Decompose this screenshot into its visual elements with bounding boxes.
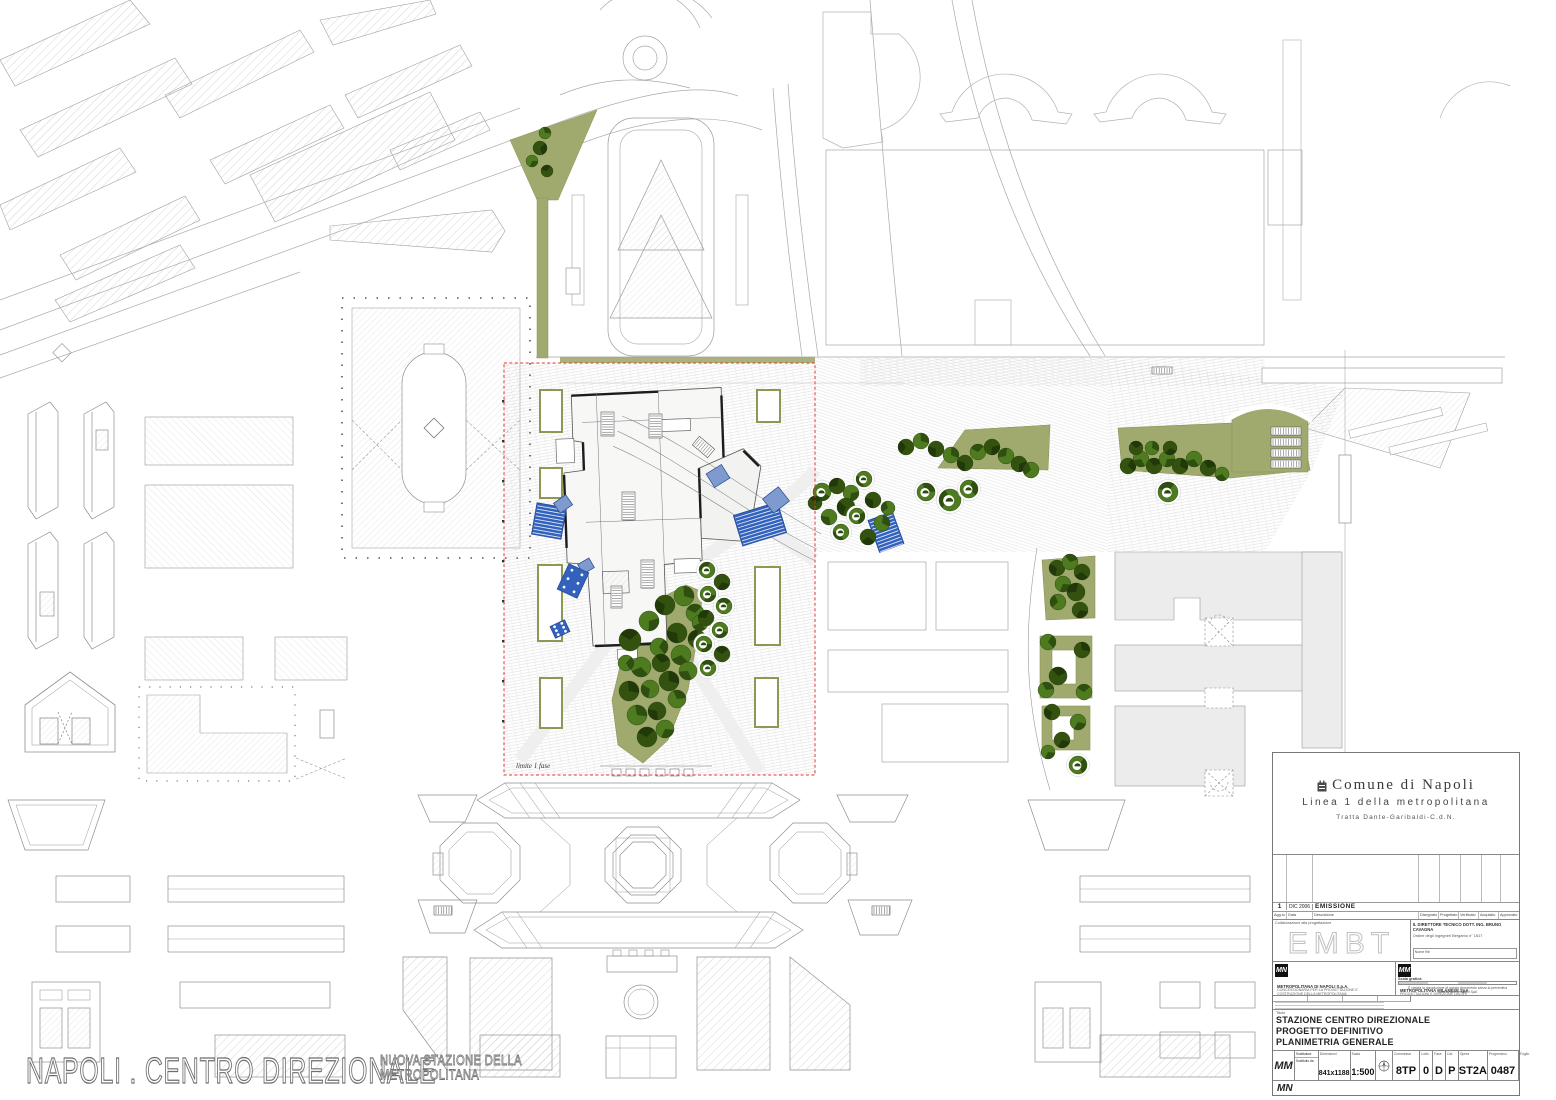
architectural-sheet: { "page": { "main_title": "NAPOLI . CENT… bbox=[0, 0, 1556, 1100]
escalator-symbol bbox=[622, 492, 635, 520]
escalator-symbol bbox=[1271, 427, 1301, 435]
linea-title: Linea 1 della metropolitana bbox=[1273, 797, 1519, 808]
revision-description: EMISSIONE bbox=[1313, 903, 1519, 910]
revision-number: 1 bbox=[1273, 903, 1287, 910]
dimensioni-value: 841x1188 bbox=[1319, 1070, 1350, 1080]
opera-cell: Opera ST2A bbox=[1459, 1051, 1488, 1080]
fase-label: Fase bbox=[1434, 1052, 1442, 1056]
revision-table bbox=[1273, 855, 1519, 903]
revision-row: 1 DIC 2006 EMISSIONE bbox=[1273, 903, 1519, 912]
lotto-value: 0 bbox=[1423, 1065, 1429, 1080]
oval-plaza bbox=[342, 298, 530, 558]
commessa-value: 8TP bbox=[1396, 1065, 1416, 1080]
escalator-symbol bbox=[434, 906, 452, 915]
dimensioni-label: Dimensioni bbox=[1320, 1052, 1337, 1056]
opera-label: Opera bbox=[1460, 1052, 1469, 1056]
mm-firm: MM METROPOLITANA MILANESE SpA PROGETTAZI… bbox=[1396, 962, 1519, 995]
lotto-cell: Lotto 0 bbox=[1420, 1051, 1433, 1080]
title-block: Comune di Napoli Linea 1 della metropoli… bbox=[1272, 752, 1520, 1096]
mm-logo: MM bbox=[1398, 964, 1411, 977]
progressivo-label: Progressivo bbox=[1489, 1052, 1507, 1056]
cat-value: P bbox=[1448, 1065, 1455, 1080]
project-title-line3: PLANIMETRIA GENERALE bbox=[1276, 1037, 1516, 1048]
escalator-symbol bbox=[649, 414, 662, 438]
mm-small: MM bbox=[1273, 1051, 1295, 1080]
opera-value: ST2A bbox=[1459, 1065, 1487, 1080]
filename-label: Nome file bbox=[1415, 950, 1430, 954]
progressivo-value: 0487 bbox=[1491, 1065, 1515, 1080]
comune-crest-icon bbox=[1317, 779, 1327, 792]
rev-col-verificato: Verificato bbox=[1459, 912, 1479, 919]
phase-label: limite 1 fase bbox=[516, 762, 550, 770]
director-line1: IL DIRETTORE TECNICO DOTT. ING. BRUNO CA… bbox=[1413, 922, 1517, 932]
mn-small: MN bbox=[1277, 1083, 1293, 1094]
fase-cell: Fase D bbox=[1433, 1051, 1446, 1080]
north-cell bbox=[1376, 1051, 1393, 1080]
comune-header: Comune di Napoli bbox=[1273, 777, 1519, 794]
commessa-label: Commessa bbox=[1394, 1052, 1411, 1056]
graphic-scale: Scala grafica È vietata la riproduzione … bbox=[1398, 977, 1517, 994]
top-center-complex bbox=[510, 0, 1105, 358]
project-title-section: Titolo STAZIONE CENTRO DIREZIONALE PROGE… bbox=[1273, 1010, 1519, 1052]
rev-col-acquisito: Acquisito bbox=[1479, 912, 1499, 919]
rev-col-aggto: Agg.to bbox=[1273, 912, 1287, 919]
progressivo-cell: Progressivo 0487 bbox=[1488, 1051, 1519, 1080]
reproduction-disclaimer: È vietata la riproduzione di questo docu… bbox=[1398, 986, 1517, 994]
escalator-symbol bbox=[1271, 438, 1301, 446]
district-northwest bbox=[0, 0, 505, 322]
north-arrow-icon bbox=[1378, 1060, 1390, 1072]
escalator-symbol bbox=[1152, 367, 1172, 374]
collab-label: Collaborazione alla progettazione bbox=[1275, 921, 1408, 925]
sheet-subtitle-line2: METROPOLITANA bbox=[380, 1068, 522, 1082]
cat-cell: Cat. P bbox=[1446, 1051, 1459, 1080]
lotto-label: Lotto bbox=[1421, 1052, 1429, 1056]
bottom-outer-blocks bbox=[8, 800, 1255, 1077]
mn-firm: MN METROPOLITANA DI NAPOLI S.p.A. CONCES… bbox=[1273, 962, 1396, 995]
subdivision-row bbox=[1273, 996, 1519, 1010]
escalator-symbol bbox=[872, 906, 890, 915]
sheet-subtitle: NUOVA STAZIONE DELLA METROPOLITANA bbox=[380, 1054, 522, 1082]
scala-cell: Scala 1:500 bbox=[1351, 1051, 1377, 1080]
comune-title: Comune di Napoli bbox=[1332, 777, 1475, 794]
rev-col-progettato: Progettato bbox=[1439, 912, 1459, 919]
rev-col-approvato: Approvato bbox=[1499, 912, 1519, 919]
collaboration-section: Collaborazione alla progettazione EMBT I… bbox=[1273, 920, 1519, 962]
project-title-line2: PROGETTO DEFINITIVO bbox=[1276, 1026, 1516, 1037]
title-block-header: Comune di Napoli Linea 1 della metropoli… bbox=[1273, 753, 1519, 855]
filename-box: Nome file bbox=[1413, 948, 1517, 959]
sheet-main-title: NAPOLI . CENTRO DIREZIONALE bbox=[26, 1050, 436, 1092]
fase-value: D bbox=[1435, 1065, 1443, 1080]
escalator-symbol bbox=[601, 412, 614, 436]
dimensioni-cell: Dimensioni 841x1188 bbox=[1319, 1051, 1351, 1080]
scala-value: 1:500 bbox=[1351, 1067, 1374, 1080]
escalator-symbol bbox=[641, 560, 654, 588]
director-line2: Ordine degli Ingegneri Bergamo n° 1617 bbox=[1413, 933, 1517, 938]
revision-header-row: Agg.to Data Descrizione Disegnato Proget… bbox=[1273, 912, 1519, 920]
rev-col-data: Data bbox=[1287, 912, 1313, 919]
existing-building-arches bbox=[823, 12, 1510, 345]
sostituisce-label: Sostituisce bbox=[1295, 1051, 1318, 1058]
firms-section: MN METROPOLITANA DI NAPOLI S.p.A. CONCES… bbox=[1273, 962, 1519, 996]
south-complex bbox=[403, 783, 912, 1078]
graphic-scale-bar bbox=[1398, 981, 1517, 985]
escalator-symbol bbox=[1271, 460, 1301, 468]
revision-date: DIC 2006 bbox=[1287, 904, 1313, 910]
sostituito-label: Sostituito da bbox=[1295, 1058, 1318, 1064]
tratta-title: Tratta Dante-Garibaldi-C.d.N. bbox=[1273, 814, 1519, 821]
project-title-line1: STAZIONE CENTRO DIREZIONALE bbox=[1276, 1015, 1516, 1026]
rev-col-descrizione: Descrizione bbox=[1313, 912, 1419, 919]
escalator-symbol bbox=[1271, 449, 1301, 457]
rev-col-disegnato: Disegnato bbox=[1419, 912, 1439, 919]
west-blocks bbox=[25, 402, 347, 781]
embt-logo: EMBT bbox=[1275, 927, 1408, 961]
sostituisce-cell: Sostituisce Sostituito da bbox=[1295, 1051, 1319, 1080]
escalator-symbol bbox=[611, 586, 622, 608]
cat-label: Cat. bbox=[1447, 1052, 1453, 1056]
mn-small-row: MN bbox=[1273, 1081, 1519, 1095]
foglio-label: Foglio bbox=[1520, 1052, 1529, 1056]
scala-label: Scala bbox=[1352, 1052, 1360, 1056]
commessa-cell: Commessa 8TP bbox=[1393, 1051, 1420, 1080]
code-row: MM Sostituisce Sostituito da Dimensioni … bbox=[1273, 1051, 1519, 1081]
mn-logo: MN bbox=[1275, 964, 1288, 977]
